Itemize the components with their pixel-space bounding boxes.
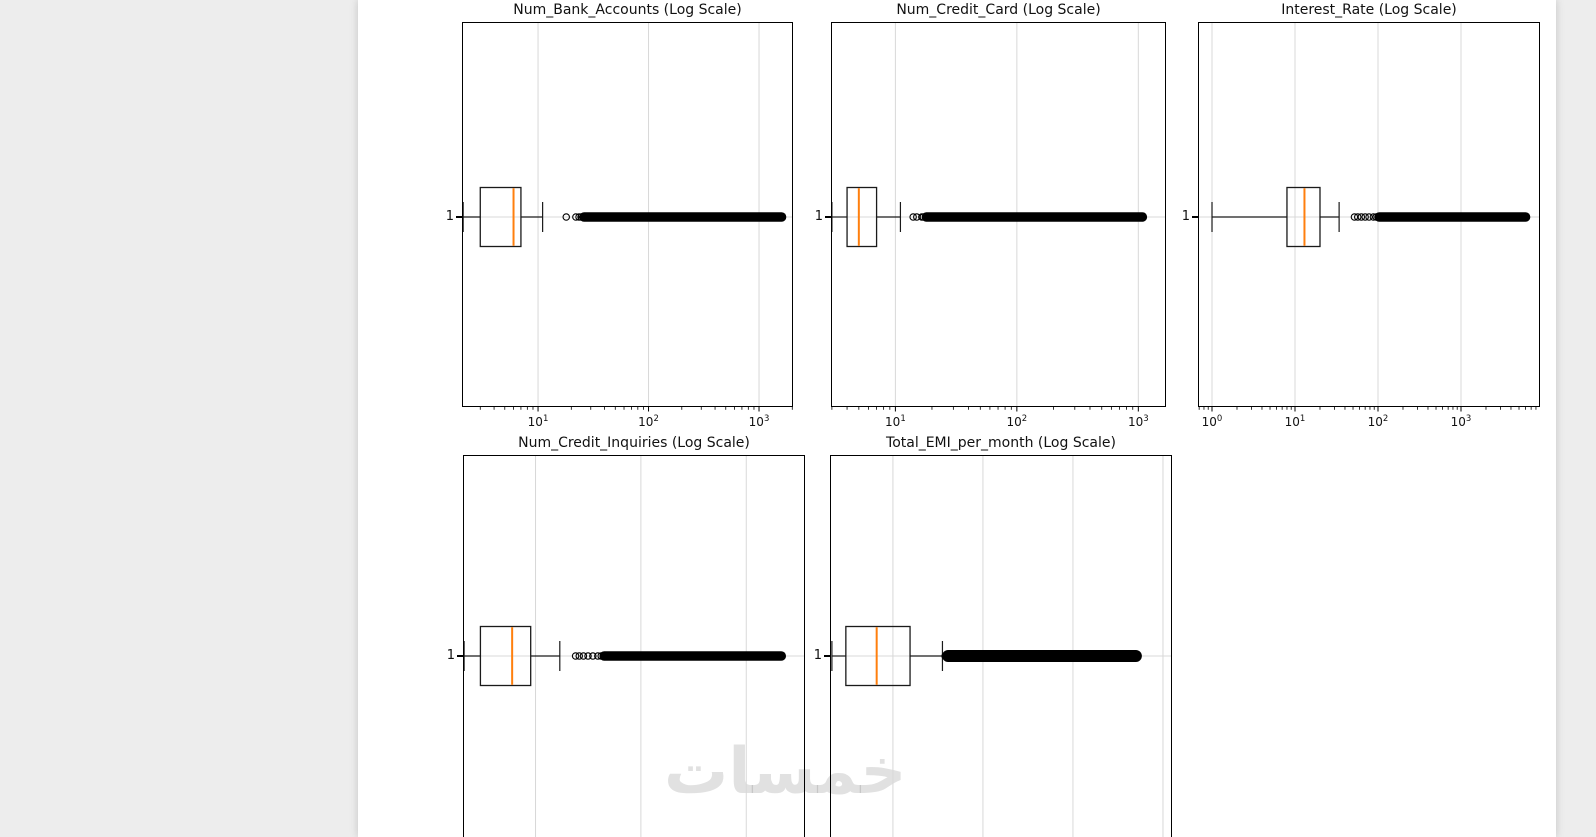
plot-title: Interest_Rate (Log Scale): [1168, 2, 1570, 18]
subplot-num-credit-inquiries: Num_Credit_Inquiries (Log Scale) 1: [463, 455, 805, 837]
x-tick-label: 102: [625, 414, 673, 429]
plot-canvas: [830, 455, 1172, 837]
subplot-interest-rate: Interest_Rate (Log Scale) 1001011021031: [1198, 22, 1540, 407]
x-tick-label: 103: [1114, 414, 1162, 429]
y-tick-mark: [457, 655, 463, 656]
y-tick-mark: [1192, 216, 1198, 217]
plot-canvas: [463, 455, 805, 837]
y-tick-mark: [825, 216, 831, 217]
y-tick-label: 1: [437, 649, 455, 663]
x-tick-label: 101: [514, 414, 562, 429]
plot-canvas: [462, 22, 793, 407]
x-tick-label: 103: [735, 414, 783, 429]
y-tick-label: 1: [805, 210, 823, 224]
subplot-total-emi-per-month: Total_EMI_per_month (Log Scale) 1: [830, 455, 1172, 837]
plot-canvas: [1198, 22, 1540, 407]
axes-spines: [464, 456, 805, 837]
axes-spines: [831, 456, 1172, 837]
subplot-num-bank-accounts: Num_Bank_Accounts (Log Scale) 1011021031: [462, 22, 793, 407]
plot-title: Num_Credit_Inquiries (Log Scale): [433, 435, 835, 451]
x-tick-label: 102: [1354, 414, 1402, 429]
screen: خمسات Num_Bank_Accounts (Log Scale) 1011…: [0, 0, 1596, 837]
x-tick-label: 101: [871, 414, 919, 429]
y-tick-mark: [456, 216, 462, 217]
plot-canvas: [831, 22, 1166, 407]
x-tick-label: 103: [1437, 414, 1485, 429]
subplot-num-credit-card: Num_Credit_Card (Log Scale) 1011021031: [831, 22, 1166, 407]
y-tick-label: 1: [804, 649, 822, 663]
plot-title: Num_Bank_Accounts (Log Scale): [432, 2, 823, 18]
x-tick-label: 101: [1271, 414, 1319, 429]
plot-title: Total_EMI_per_month (Log Scale): [800, 435, 1202, 451]
x-tick-label: 100: [1188, 414, 1236, 429]
plot-title: Num_Credit_Card (Log Scale): [801, 2, 1196, 18]
y-tick-label: 1: [436, 210, 454, 224]
x-tick-label: 102: [993, 414, 1041, 429]
y-tick-mark: [824, 655, 830, 656]
y-tick-label: 1: [1172, 210, 1190, 224]
